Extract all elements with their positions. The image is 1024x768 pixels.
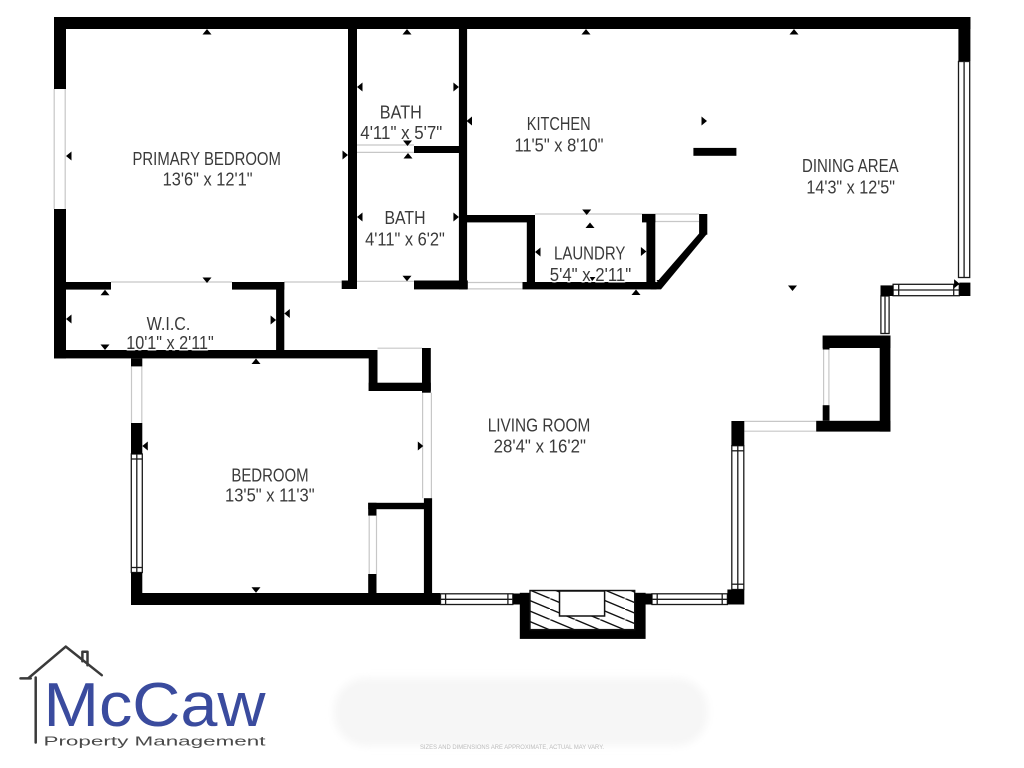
svg-text:13'5" x 11'3": 13'5" x 11'3" <box>225 486 315 506</box>
svg-text:LIVING ROOM: LIVING ROOM <box>488 416 591 436</box>
svg-text:10'1" x 2'11": 10'1" x 2'11" <box>126 333 214 353</box>
svg-text:BATH: BATH <box>385 208 426 228</box>
svg-text:14'3" x 12'5": 14'3" x 12'5" <box>806 178 895 198</box>
svg-text:KITCHEN: KITCHEN <box>527 114 591 134</box>
svg-text:11'5" x 8'10": 11'5" x 8'10" <box>514 136 603 156</box>
svg-text:Property Management: Property Management <box>44 734 267 749</box>
svg-text:4'11" x 6'2": 4'11" x 6'2" <box>365 230 445 250</box>
svg-text:DINING AREA: DINING AREA <box>802 156 899 176</box>
svg-text:4'11" x 5'7": 4'11" x 5'7" <box>360 123 442 143</box>
svg-text:BEDROOM: BEDROOM <box>231 466 308 486</box>
svg-text:SIZES AND DIMENSIONS ARE APPRO: SIZES AND DIMENSIONS ARE APPROXIMATE, AC… <box>420 744 604 751</box>
svg-text:28'4" x 16'2": 28'4" x 16'2" <box>494 437 586 457</box>
svg-text:PRIMARY BEDROOM: PRIMARY BEDROOM <box>133 149 281 169</box>
svg-text:McCaw: McCaw <box>44 671 266 740</box>
svg-text:W.I.C.: W.I.C. <box>147 314 191 334</box>
svg-text:5'4" x 2'11": 5'4" x 2'11" <box>550 265 631 285</box>
svg-text:13'6" x 12'1": 13'6" x 12'1" <box>163 170 253 190</box>
svg-text:LAUNDRY: LAUNDRY <box>554 244 625 264</box>
svg-text:BATH: BATH <box>380 103 422 123</box>
